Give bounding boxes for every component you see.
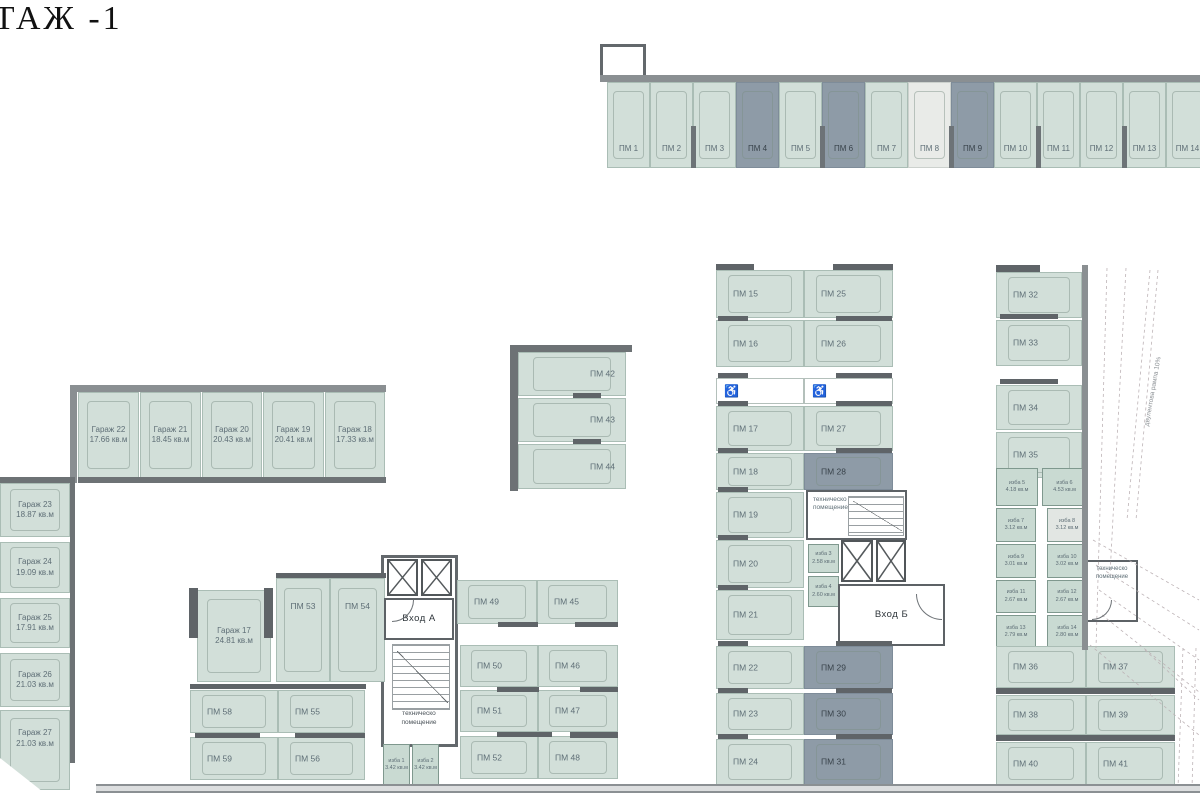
wall [295,733,365,738]
wall [195,733,260,738]
parking-pm-19: ПМ 19 [716,492,804,538]
parking-pm-58-label: ПМ 58 [207,706,232,717]
garage-21-label: Гараж 2118.45 кв.м [152,425,190,446]
tech-room-a-label: техническопомещение [382,710,456,728]
parking-pm-2: ПМ 2 [650,82,693,168]
parking-pm-14: ПМ 14 [1166,82,1200,168]
parking-pm-54-label: ПМ 54 [331,601,384,612]
wall [836,316,892,321]
tech-room-c-label: техническопомещение [1090,566,1134,582]
garage-27: Гараж 2721.03 кв.м [0,710,70,790]
parking-pm-53-label: ПМ 53 [277,601,329,612]
parking-pm-43-label: ПМ 43 [590,414,615,425]
ramp-label: двулентова рампа 10% [1139,332,1167,451]
parking-pm-26-label: ПМ 26 [821,338,846,349]
wall [718,373,748,378]
wall [718,535,748,540]
roof-hatch [600,44,646,78]
parking-pm-37-label: ПМ 37 [1103,661,1128,672]
cellar-izba-7-label: изба 73.12 кв.м [1005,518,1028,532]
parking-pm-43: ПМ 43 [518,398,626,442]
parking-pm-18-label: ПМ 18 [733,466,758,477]
garage-26-label: Гараж 2621.03 кв.м [16,670,54,691]
wall [716,264,754,270]
parking-pm-29: ПМ 29 [804,646,893,689]
parking-pm-45-label: ПМ 45 [554,596,579,607]
cellar-izba-2-label: изба 23.42 кв.м [414,758,437,772]
parking-pm-28: ПМ 28 [804,453,893,490]
garage-20-label: Гараж 2020.43 кв.м [213,425,251,446]
parking-pm-1: ПМ 1 [607,82,650,168]
wall [70,483,75,763]
parking-pm-24-label: ПМ 24 [733,756,758,767]
garage-18: Гараж 1817.33 кв.м [325,392,385,478]
garage-20: Гараж 2020.43 кв.м [202,392,262,478]
wall [691,126,696,168]
parking-pm-58: ПМ 58 [190,690,278,733]
cellar-izba-5-label: изба 54.18 кв.м [1006,480,1029,494]
stairs [848,496,904,536]
cellar-izba-10-label: изба 103.02 кв.м [1056,554,1079,568]
wall [497,732,552,737]
parking-pm-20-label: ПМ 20 [733,558,758,569]
wall [836,641,892,646]
parking-pm-13-label: ПМ 13 [1124,144,1165,154]
cellar-izba-2: изба 23.42 кв.м [412,744,439,786]
cellar-izba-10: изба 103.02 кв.м [1047,544,1087,578]
cellar-izba-12-label: изба 122.67 кв.м [1056,589,1079,603]
wall [1000,314,1058,319]
garage-17: Гараж 1724.81 кв.м [197,590,271,682]
parking-pm-54: ПМ 54 [330,578,385,682]
wall [820,126,825,168]
wall [836,373,892,378]
parking-pm-44: ПМ 44 [518,444,626,489]
wall [497,687,539,692]
parking-pm-13: ПМ 13 [1123,82,1166,168]
parking-pm-22-label: ПМ 22 [733,662,758,673]
parking-pm-18: ПМ 18 [716,453,804,490]
parking-pm-12-label: ПМ 12 [1081,144,1122,154]
parking-pm-22: ПМ 22 [716,646,804,689]
parking-pm-41-label: ПМ 41 [1103,758,1128,769]
parking-pm-21: ПМ 21 [716,590,804,640]
parking-pm-48: ПМ 48 [538,736,618,779]
garage-18-label: Гараж 1817.33 кв.м [336,425,374,446]
wall [510,345,518,491]
parking-pm-42: ПМ 42 [518,352,626,396]
parking-pm-4: ПМ 4 [736,82,779,168]
wall [718,401,748,406]
parking-pm-45: ПМ 45 [537,580,618,624]
parking-pm-9-label: ПМ 9 [952,144,993,154]
wall [78,477,386,483]
cellar-izba-13: изба 132.79 кв.м [996,615,1036,649]
cellar-izba-3: изба 32.58 кв.м [808,544,839,573]
elevator-shaft [421,559,452,596]
parking-pm-25-label: ПМ 25 [821,288,846,299]
parking-pm-49-label: ПМ 49 [474,596,499,607]
parking-pm-32: ПМ 32 [996,272,1082,318]
parking-pm-16: ПМ 16 [716,320,804,367]
cellar-izba-5: изба 54.18 кв.м [996,468,1038,506]
cellar-izba-1: изба 13.42 кв.м [383,744,410,786]
garage-23: Гараж 2318.87 кв.м [0,483,70,537]
wall [70,385,386,392]
parking-pm-6-label: ПМ 6 [823,144,864,154]
elevator-shaft [841,540,873,582]
wall [276,573,386,578]
parking-pm-6: ПМ 6 [822,82,865,168]
parking-pm-30: ПМ 30 [804,693,893,735]
parking-pm-27: ПМ 27 [804,406,893,451]
wall [1036,126,1041,168]
parking-pm-51-label: ПМ 51 [477,705,502,716]
parking-pm-56: ПМ 56 [278,737,365,780]
wall [600,75,1200,82]
parking-pm-10-label: ПМ 10 [995,144,1036,154]
parking-pm-5: ПМ 5 [779,82,822,168]
elevator-shaft [876,540,906,582]
parking-pm-4-label: ПМ 4 [737,144,778,154]
stairs [392,644,450,710]
wall [718,487,748,492]
parking-pm-1-label: ПМ 1 [608,144,649,154]
parking-pm-3: ПМ 3 [693,82,736,168]
cellar-izba-3-label: изба 32.58 кв.м [812,551,835,565]
wall [718,585,748,590]
garage-26: Гараж 2621.03 кв.м [0,653,70,707]
parking-pm-40: ПМ 40 [996,742,1086,785]
garage-22-label: Гараж 2217.66 кв.м [90,425,128,446]
parking-pm-38-label: ПМ 38 [1013,709,1038,720]
parking-pm-23: ПМ 23 [716,693,804,735]
wall [718,688,748,693]
cellar-izba-14: изба 142.80 кв.м [1047,615,1087,649]
wall [718,448,748,453]
parking-pm-7: ПМ 7 [865,82,908,168]
parking-pm-24: ПМ 24 [716,739,804,785]
garage-17-label: Гараж 1724.81 кв.м [215,626,253,647]
parking-pm-30-label: ПМ 30 [821,708,846,719]
wall [833,264,893,270]
cellar-izba-4-label: изба 42.60 кв.м [812,584,835,598]
parking-pm-59: ПМ 59 [190,737,278,780]
parking-pm-31-label: ПМ 31 [821,756,846,767]
cellar-izba-12: изба 122.67 кв.м [1047,580,1087,613]
parking-pm-36-label: ПМ 36 [1013,661,1038,672]
garage-21: Гараж 2118.45 кв.м [140,392,201,478]
parking-pm-46-label: ПМ 46 [555,660,580,671]
wall [836,688,892,693]
parking-pm-44-label: ПМ 44 [590,461,615,472]
parking-pm-34: ПМ 34 [996,385,1082,430]
parking-pm-33: ПМ 33 [996,320,1082,366]
parking-pm-8-label: ПМ 8 [909,144,950,154]
garage-19-label: Гараж 1920.41 кв.м [275,425,313,446]
parking-pm-32-label: ПМ 32 [1013,289,1038,300]
parking-pm-36: ПМ 36 [996,646,1086,688]
parking-pm-7-label: ПМ 7 [866,144,907,154]
wall [0,477,75,483]
parking-pm-8: ПМ 8 [908,82,951,168]
garage-27-label: Гараж 2721.03 кв.м [1,728,69,749]
parking-pm-25: ПМ 25 [804,270,893,318]
parking-pm-31: ПМ 31 [804,739,893,785]
parking-pm-48-label: ПМ 48 [555,752,580,763]
cellar-izba-9: изба 93.01 кв.м [996,544,1036,578]
parking-pm-49: ПМ 49 [457,580,537,624]
wall [836,401,892,406]
parking-pm-15: ПМ 15 [716,270,804,318]
wheelchair-icon: ♿ [724,384,739,398]
parking-pm-17-label: ПМ 17 [733,423,758,434]
cellar-izba-13-label: изба 132.79 кв.м [1005,625,1028,639]
parking-pm-46: ПМ 46 [538,645,618,687]
parking-pm-55-label: ПМ 55 [295,706,320,717]
parking-pm-47: ПМ 47 [538,690,618,732]
tech-room-b-label: техническопомещение [813,496,848,513]
garage-24-label: Гараж 2419.09 кв.м [16,557,54,578]
parking-pm-50: ПМ 50 [460,645,538,687]
parking-pm-28-label: ПМ 28 [821,466,846,477]
cellar-izba-9-label: изба 93.01 кв.м [1005,554,1028,568]
parking-pm-34-label: ПМ 34 [1013,402,1038,413]
garage-22: Гараж 2217.66 кв.м [78,392,139,478]
parking-pm-20: ПМ 20 [716,540,804,588]
floor-title: ЕТАЖ -1 [0,0,123,38]
garage-25-label: Гараж 2517.91 кв.м [16,613,54,634]
parking-pm-29-label: ПМ 29 [821,662,846,673]
parking-pm-52: ПМ 52 [460,736,538,779]
wall [836,734,892,739]
wall [573,439,601,444]
wall [510,345,632,352]
parking-pm-11: ПМ 11 [1037,82,1080,168]
parking-pm-33-label: ПМ 33 [1013,337,1038,348]
parking-pm-15-label: ПМ 15 [733,288,758,299]
wall [190,684,366,689]
parking-pm-5-label: ПМ 5 [780,144,821,154]
cellar-izba-8: изба 83.12 кв.м [1047,508,1087,542]
parking-pm-16-label: ПМ 16 [733,338,758,349]
garage-24: Гараж 2419.09 кв.м [0,542,70,593]
parking-pm-19-label: ПМ 19 [733,509,758,520]
parking-pm-27-label: ПМ 27 [821,423,846,434]
parking-pm-21-label: ПМ 21 [733,609,758,620]
parking-pm-37: ПМ 37 [1086,646,1175,688]
parking-pm-38: ПМ 38 [996,695,1086,735]
parking-pm-35-label: ПМ 35 [1013,449,1038,460]
garage-25: Гараж 2517.91 кв.м [0,598,70,648]
wall [70,385,77,483]
parking-pm-14-label: ПМ 14 [1167,144,1200,154]
cellar-izba-8-label: изба 83.12 кв.м [1056,518,1079,532]
parking-pm-55: ПМ 55 [278,690,365,733]
parking-pm-59-label: ПМ 59 [207,753,232,764]
parking-pm-3-label: ПМ 3 [694,144,735,154]
parking-pm-39: ПМ 39 [1086,695,1175,735]
parking-pm-2-label: ПМ 2 [651,144,692,154]
cellar-izba-7: изба 73.12 кв.м [996,508,1036,542]
wall [1082,265,1088,650]
parking-pm-42-label: ПМ 42 [590,368,615,379]
wall [189,588,198,638]
parking-pm-50-label: ПМ 50 [477,660,502,671]
elevator-shaft [387,559,418,596]
cellar-izba-6-label: изба 64.53 кв.м [1053,480,1076,494]
wheelchair-icon: ♿ [812,384,827,398]
wall [573,393,601,398]
wall [836,448,892,453]
wall [949,126,954,168]
wall [996,265,1040,272]
floor-plan: ЕТАЖ -1 двулентова рампа 10% ПМ 1ПМ 2ПМ … [0,0,1200,800]
parking-pm-10: ПМ 10 [994,82,1037,168]
entrance-b-label: Вход Б [875,609,908,621]
wall [580,687,618,692]
parking-pm-56-label: ПМ 56 [295,753,320,764]
wall [96,784,1200,793]
wall [718,734,748,739]
wall [996,688,1175,694]
wall [498,622,538,627]
parking-pm-17: ПМ 17 [716,406,804,451]
wall [996,735,1175,741]
garage-23-label: Гараж 2318.87 кв.м [16,500,54,521]
cellar-izba-6: изба 64.53 кв.м [1042,468,1087,506]
wall [718,316,748,321]
wall [570,732,618,738]
cellar-izba-11: изба 112.67 кв.м [996,580,1036,613]
parking-pm-40-label: ПМ 40 [1013,758,1038,769]
wall [1000,379,1058,384]
parking-pm-51: ПМ 51 [460,690,538,732]
cellar-izba-14-label: изба 142.80 кв.м [1056,625,1079,639]
parking-pm-26: ПМ 26 [804,320,893,367]
garage-19: Гараж 1920.41 кв.м [263,392,324,478]
parking-pm-53: ПМ 53 [276,578,330,682]
wall [575,622,618,627]
cellar-izba-1-label: изба 13.42 кв.м [385,758,408,772]
parking-pm-12: ПМ 12 [1080,82,1123,168]
parking-pm-39-label: ПМ 39 [1103,709,1128,720]
cellar-izba-4: изба 42.60 кв.м [808,576,839,607]
parking-pm-9: ПМ 9 [951,82,994,168]
parking-pm-23-label: ПМ 23 [733,708,758,719]
parking-pm-47-label: ПМ 47 [555,705,580,716]
wall [264,588,273,638]
wall [1122,126,1127,168]
parking-pm-52-label: ПМ 52 [477,752,502,763]
cellar-izba-11-label: изба 112.67 кв.м [1005,589,1028,603]
parking-pm-41: ПМ 41 [1086,742,1175,785]
parking-pm-11-label: ПМ 11 [1038,144,1079,154]
wall [718,641,748,646]
